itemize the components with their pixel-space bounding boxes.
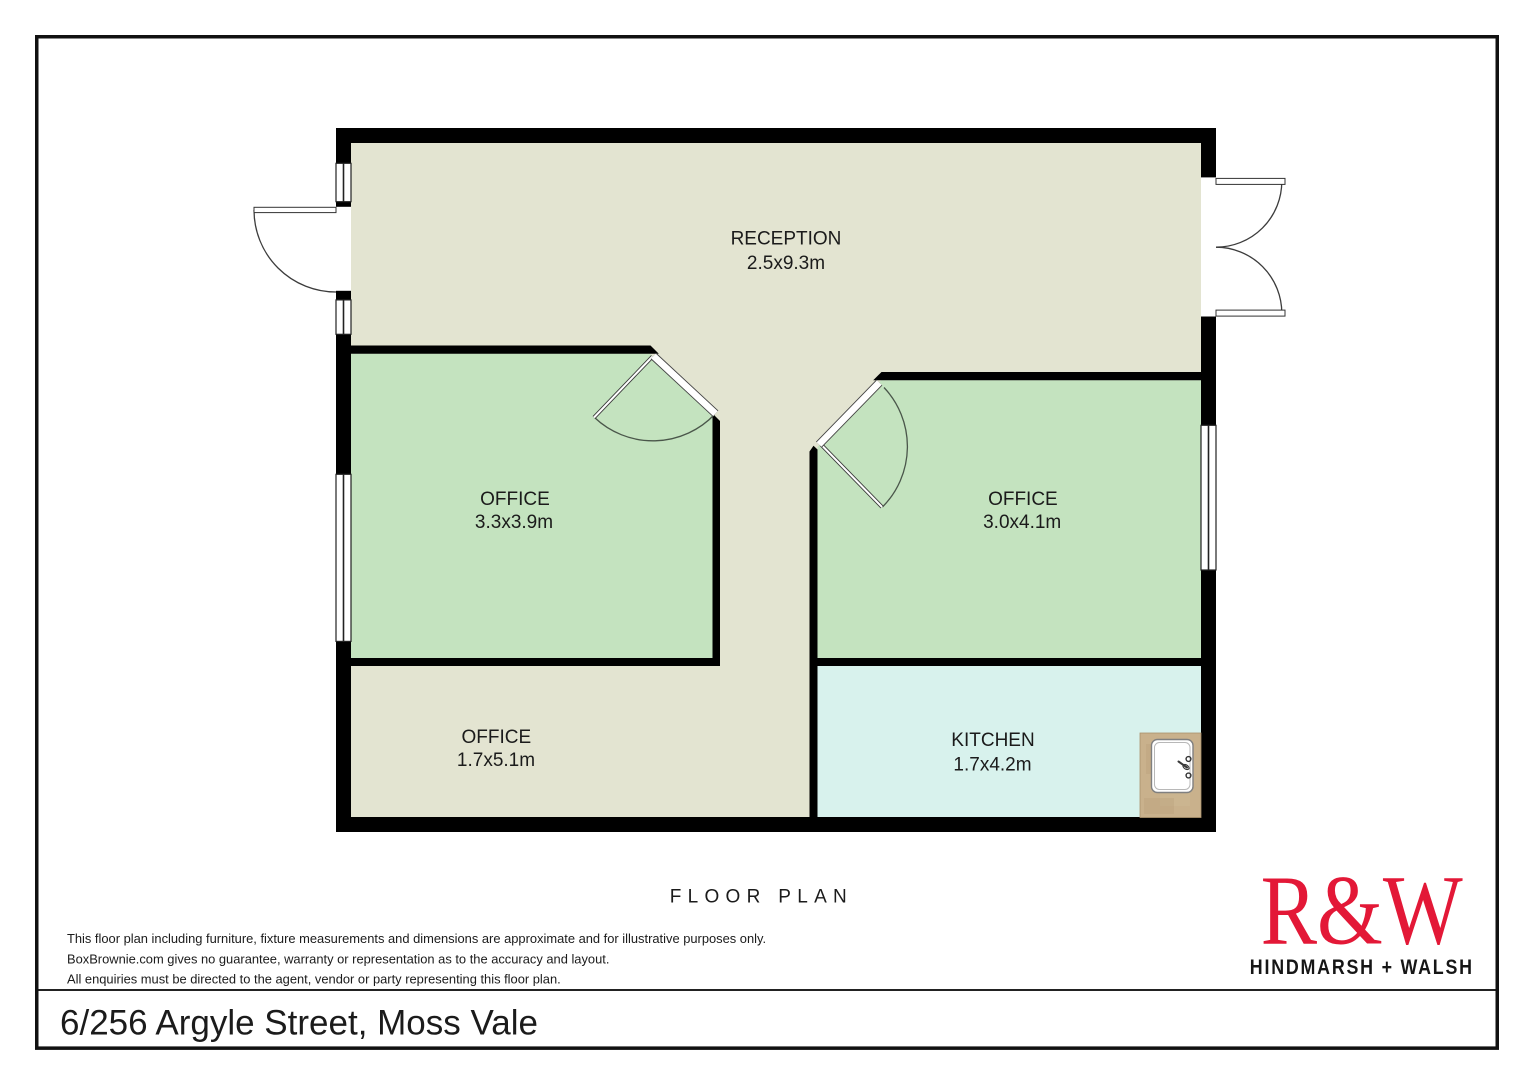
svg-text:R&W: R&W [1261,855,1464,966]
svg-text:1.7x4.2m: 1.7x4.2m [953,755,1031,776]
svg-text:FLOOR PLAN: FLOOR PLAN [670,887,853,908]
svg-text:OFFICE: OFFICE [988,489,1058,510]
svg-text:6/256 Argyle Street, Moss Vale: 6/256 Argyle Street, Moss Vale [60,1004,538,1043]
svg-text:3.3x3.9m: 3.3x3.9m [475,512,553,533]
svg-text:HINDMARSH + WALSH: HINDMARSH + WALSH [1250,955,1474,979]
svg-text:3.0x4.1m: 3.0x4.1m [983,512,1061,533]
svg-text:OFFICE: OFFICE [461,727,531,748]
svg-text:All enquiries must be directed: All enquiries must be directed to the ag… [67,972,561,987]
svg-text:2.5x9.3m: 2.5x9.3m [747,253,825,274]
svg-text:KITCHEN: KITCHEN [951,730,1034,751]
svg-text:OFFICE: OFFICE [480,489,550,510]
svg-text:1.7x5.1m: 1.7x5.1m [457,750,535,771]
svg-text:BoxBrownie.com gives no guaran: BoxBrownie.com gives no guarantee, warra… [67,951,609,966]
svg-text:RECEPTION: RECEPTION [731,228,842,249]
svg-text:This floor plan including furn: This floor plan including furniture, fix… [67,931,766,946]
